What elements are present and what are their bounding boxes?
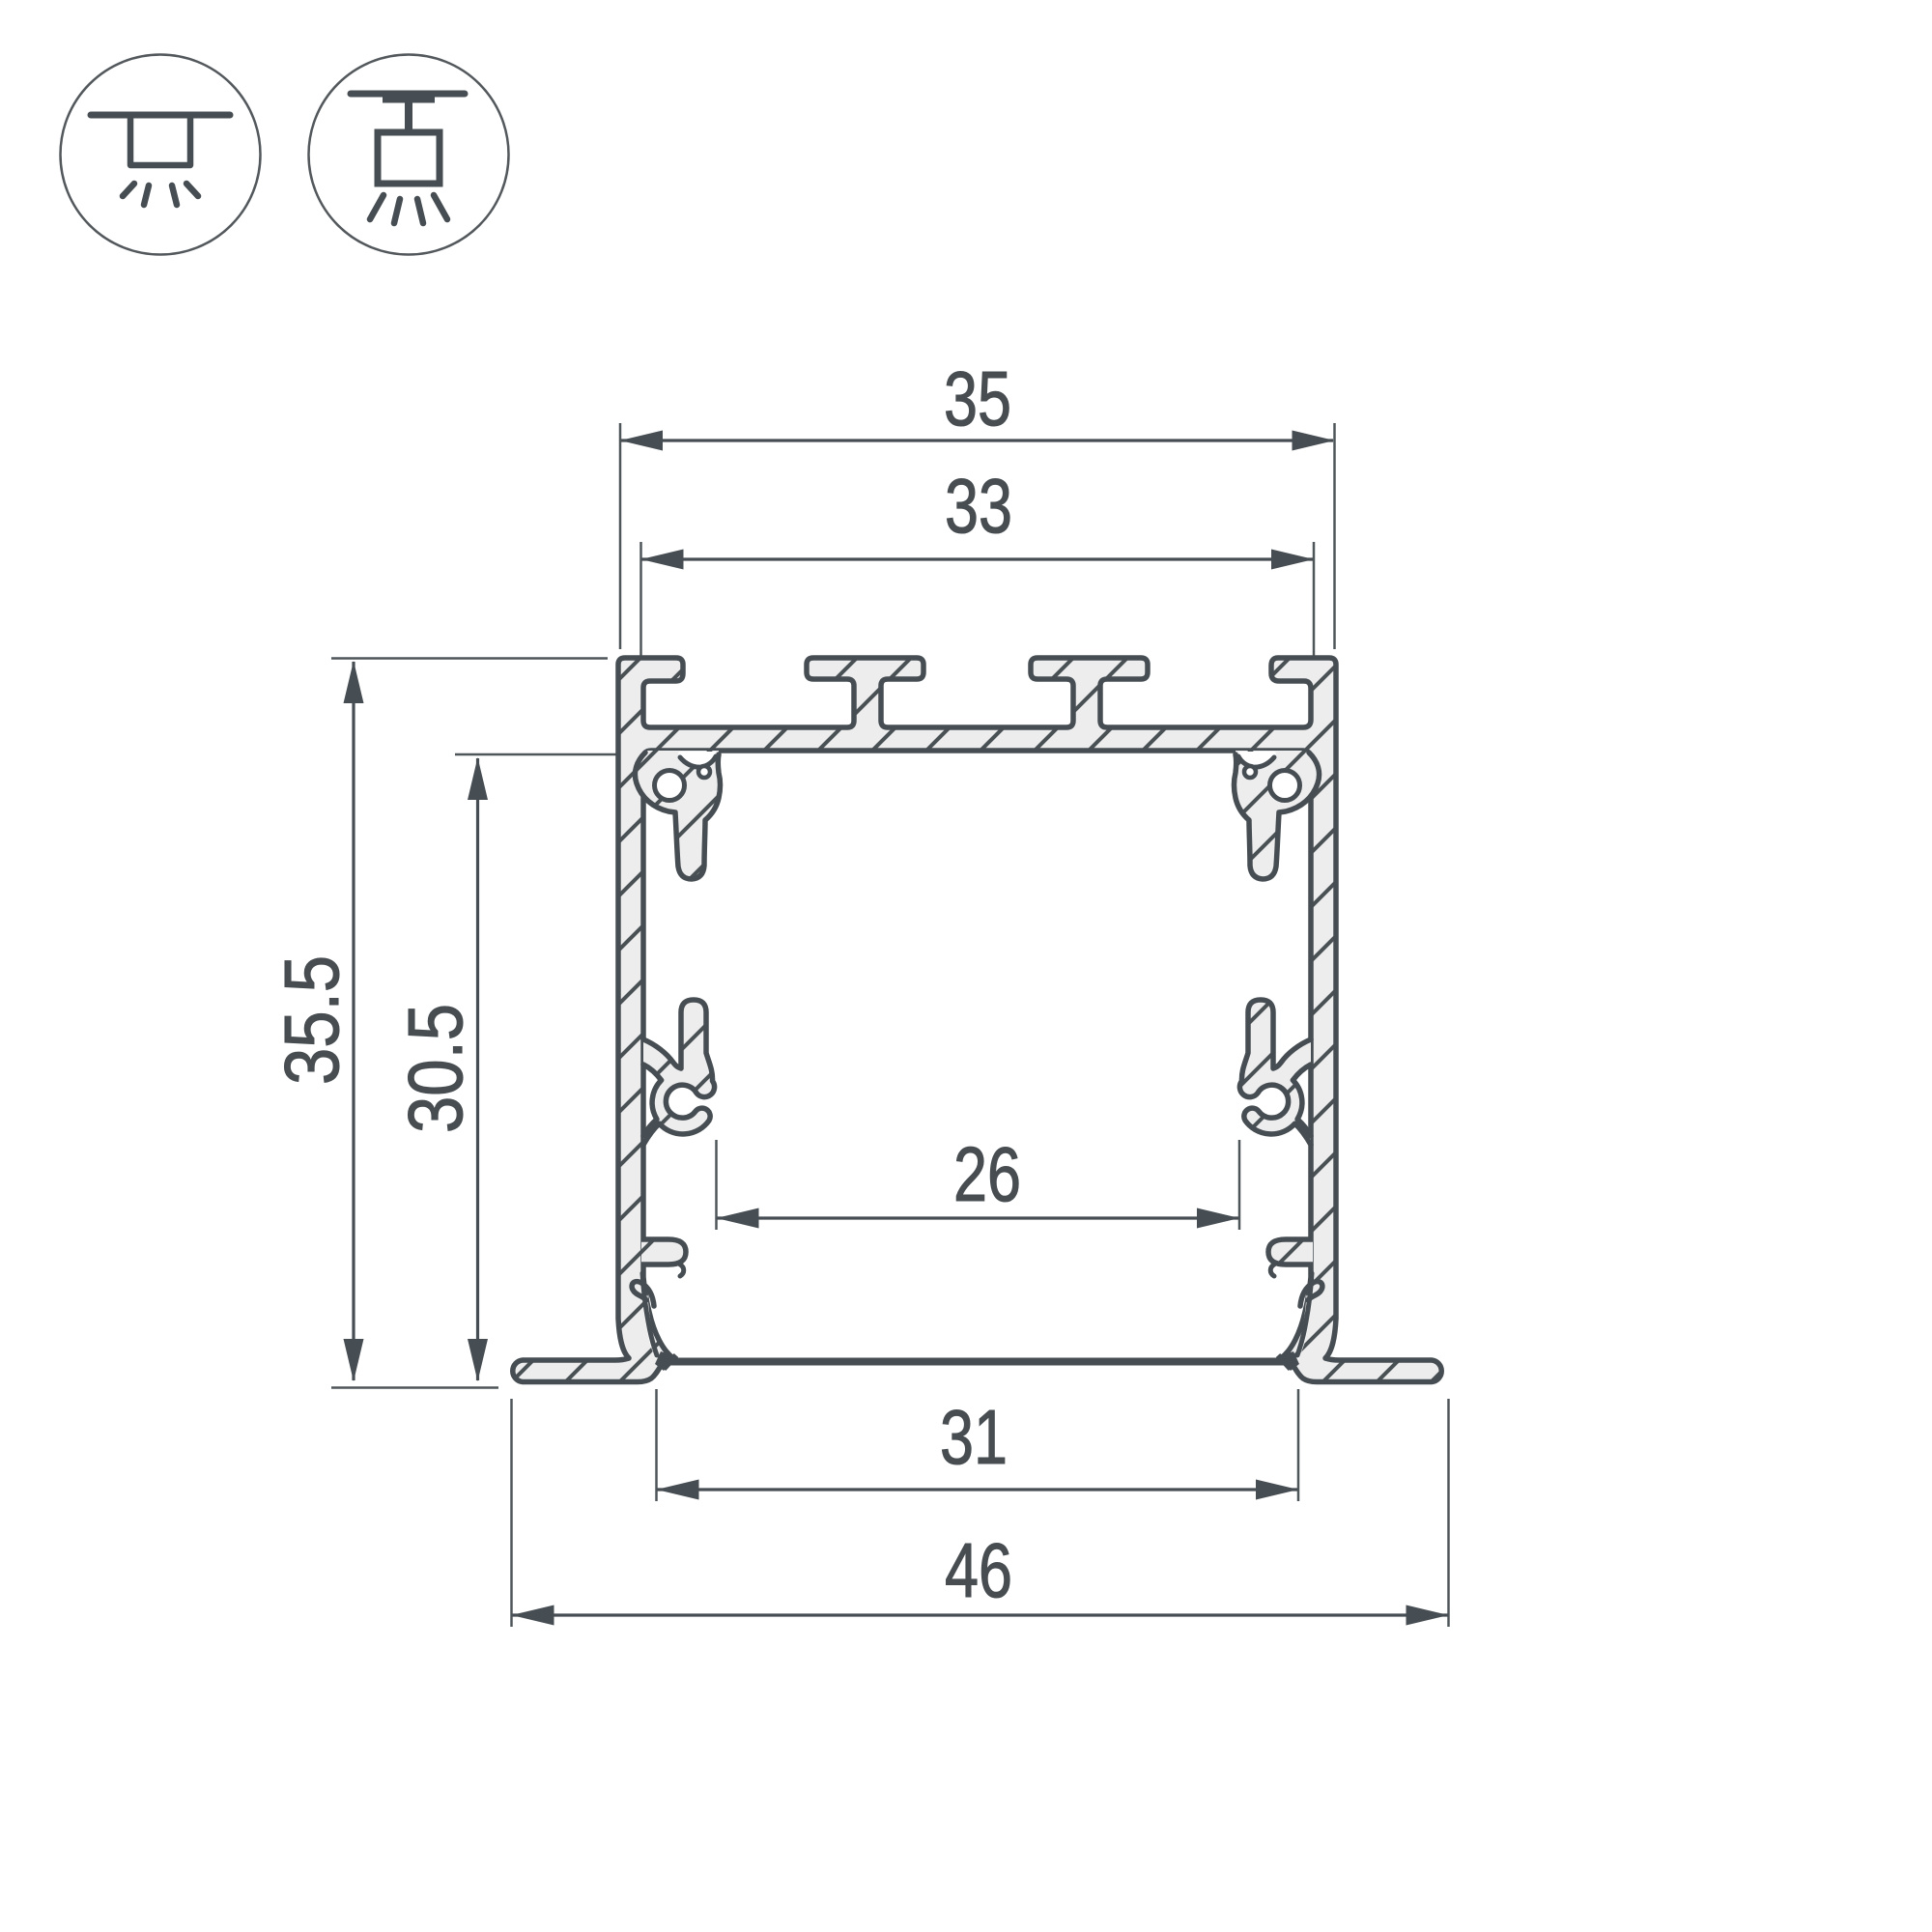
- svg-text:33: 33: [945, 463, 1012, 549]
- svg-text:31: 31: [940, 1394, 1008, 1480]
- svg-text:30.5: 30.5: [392, 1004, 478, 1133]
- svg-text:26: 26: [953, 1131, 1021, 1217]
- svg-text:46: 46: [945, 1527, 1012, 1613]
- svg-text:35: 35: [944, 355, 1011, 441]
- svg-text:35.5: 35.5: [269, 955, 355, 1085]
